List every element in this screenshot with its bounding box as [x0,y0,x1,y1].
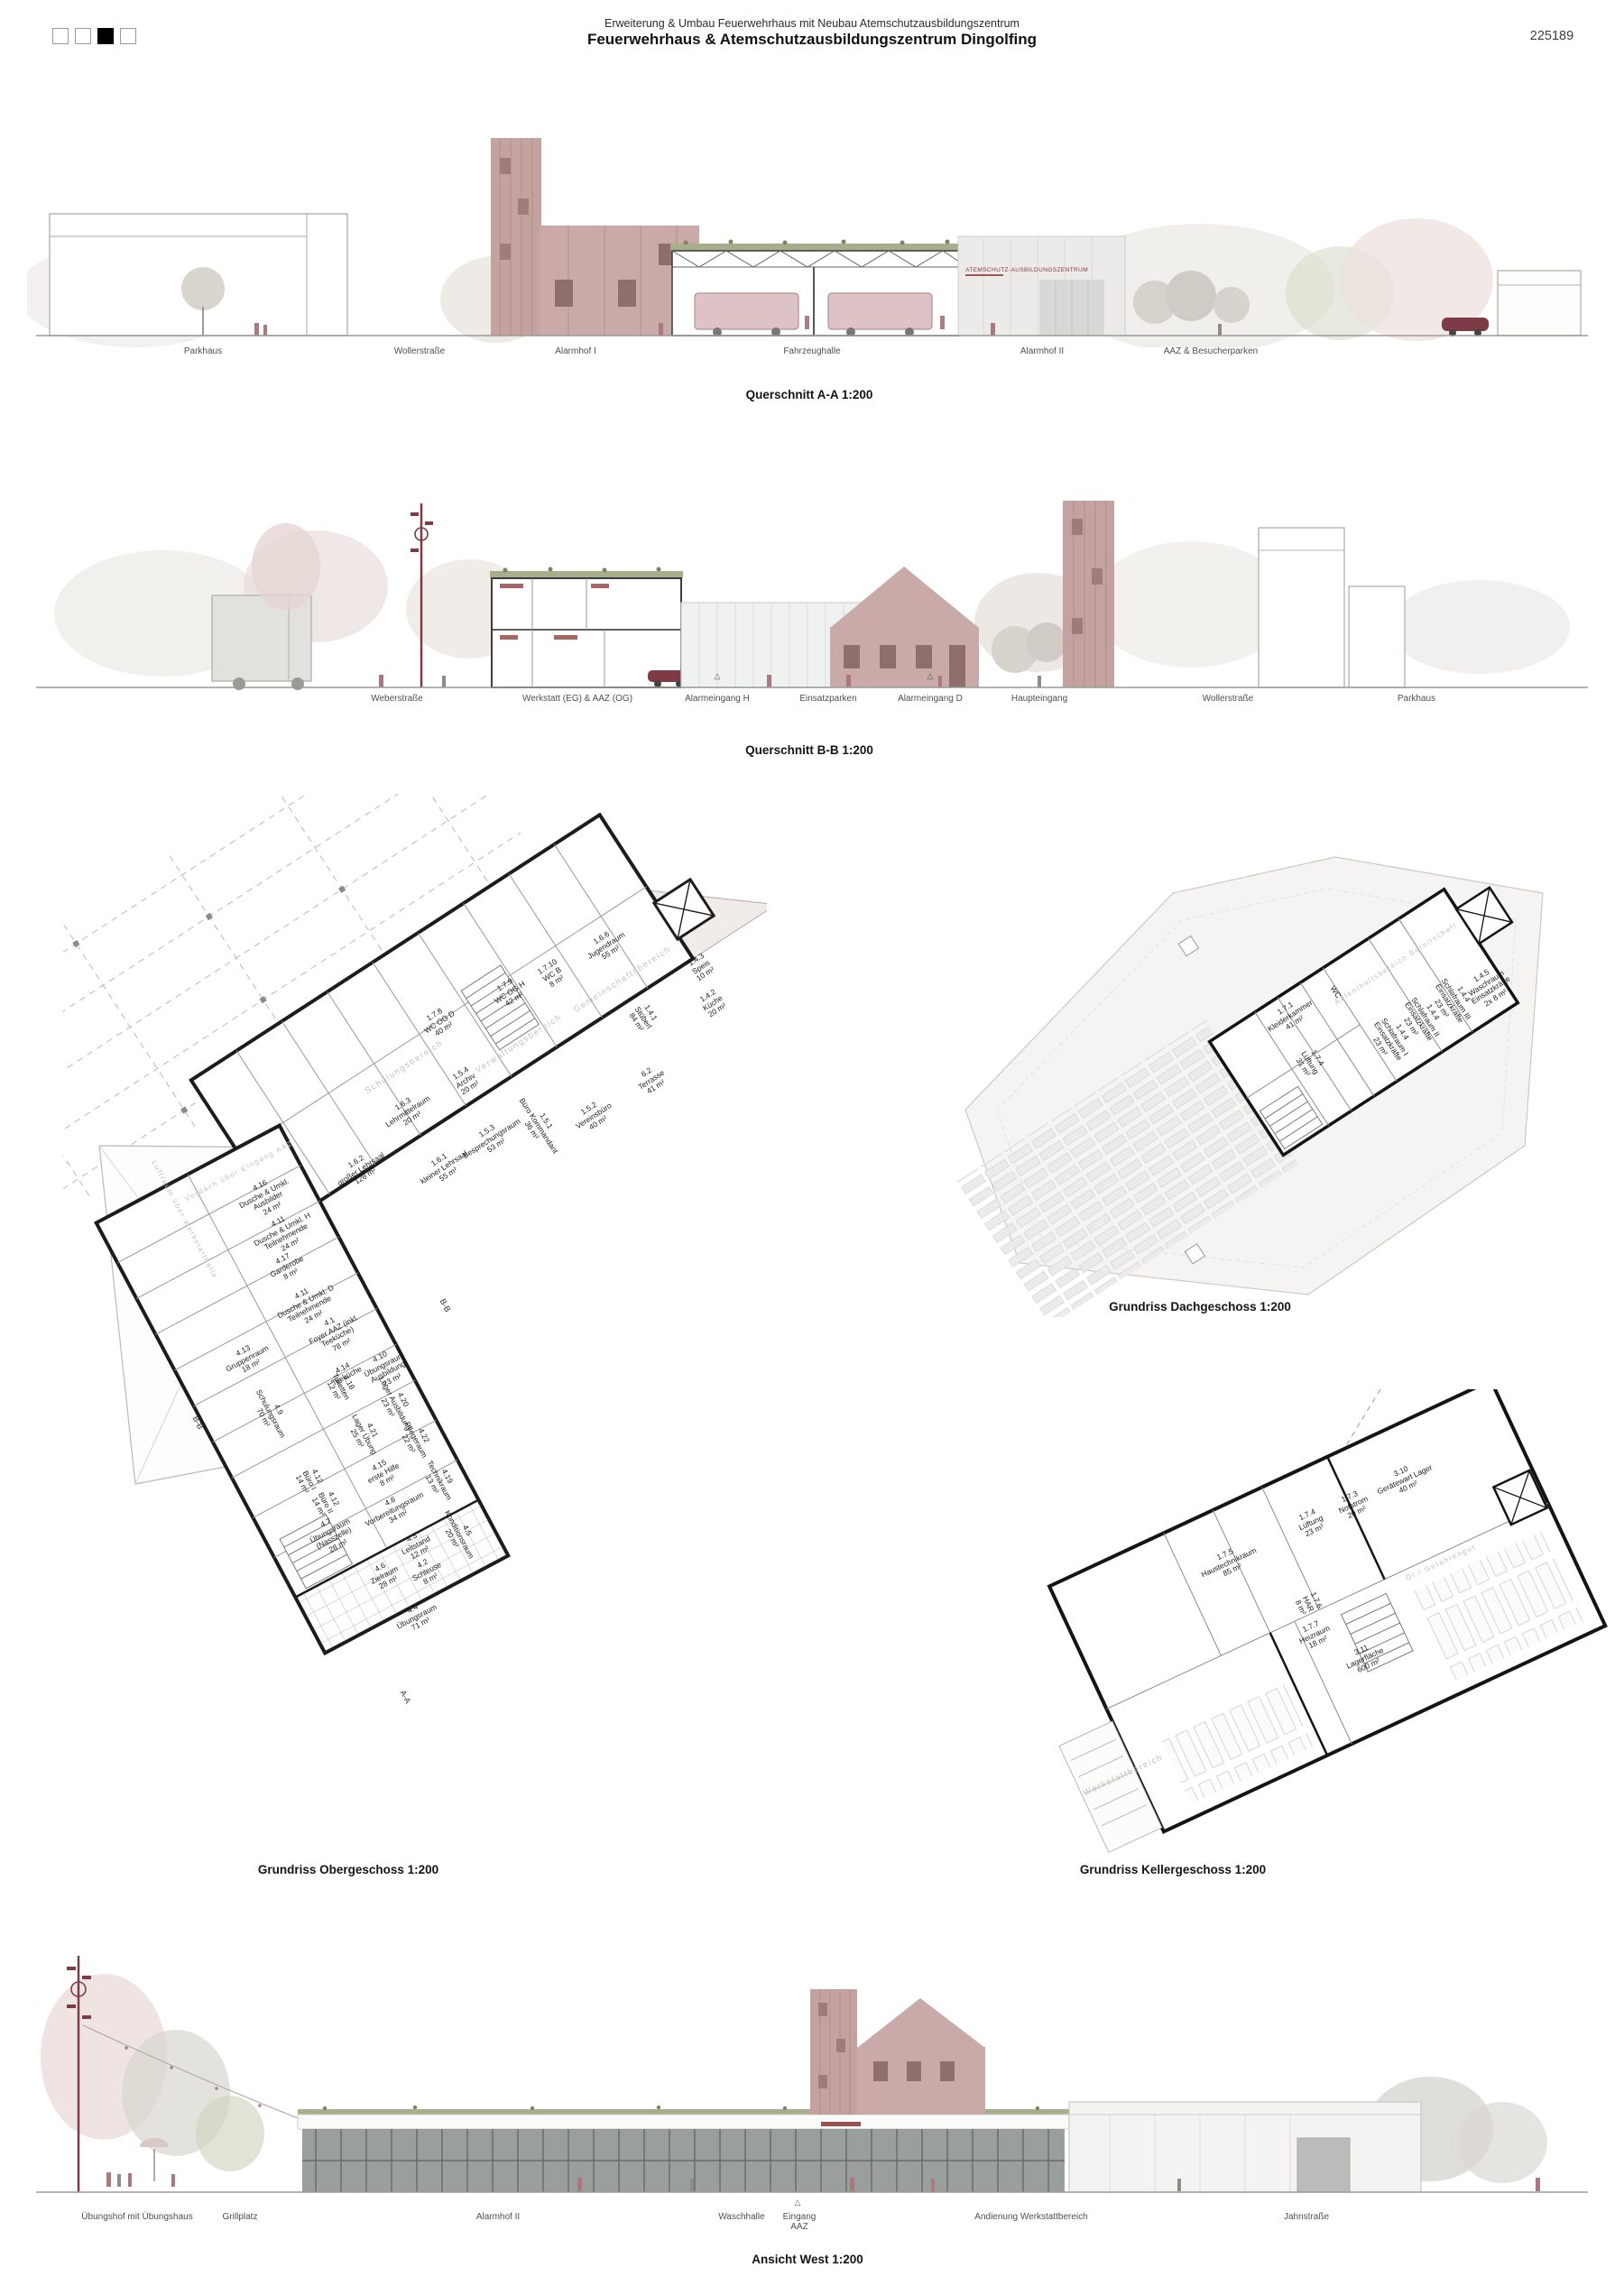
entrance-marker-triangle: △ [927,671,934,681]
ground-label: Wollerstraße [394,346,446,356]
caption-querschnitt-aa: Querschnitt A-A 1:200 [746,388,873,401]
page-indicator-square [120,28,136,44]
presentation-board: { "header": { "project_line": "Erweiteru… [0,0,1624,2295]
section-aa-drawing: ATEMSCHUTZ-AUSBILDUNGSZENTRUM [27,108,1597,347]
project-subtitle: Erweiterung & Umbau Feuerwehrhaus mit Ne… [604,17,1020,30]
caption-ansicht-west: Ansicht West 1:200 [752,2253,863,2266]
ground-label: Grillplatz [223,2212,258,2222]
ground-label: Alarmeingang H [685,694,750,704]
ground-label: Alarmhof I [555,346,596,356]
caption-grundriss-dachgeschoss: Grundriss Dachgeschoss 1:200 [1109,1300,1291,1313]
page-indicator-square-active [97,28,114,44]
dg-plan-drawing [947,839,1579,1317]
sheet-number: 225189 [1530,29,1573,43]
ground-label: Werkstatt (EG) & AAZ (OG) [522,694,632,704]
ground-label: Wollerstraße [1203,694,1254,704]
caption-grundriss-kellergeschoss: Grundriss Kellergeschoss 1:200 [1080,1863,1266,1876]
ground-label: Haupteingang [1011,694,1067,704]
page-indicator-square [75,28,91,44]
ground-label: Andienung Werkstattbereich [974,2212,1087,2222]
ground-label: Einsatzparken [799,694,856,704]
ground-label: Übungshof mit Übungshaus [81,2212,192,2222]
ground-label: Parkhaus [1398,694,1435,704]
ground-label: AAZ & Besucherparken [1164,346,1259,356]
page-indicator [52,28,136,44]
page-title: Feuerwehrhaus & Atemschutzausbildungszen… [587,31,1037,49]
ground-label: Waschhalle [718,2212,764,2222]
page-indicator-square [52,28,69,44]
section-bb-drawing [27,451,1597,699]
ground-label: Parkhaus [184,346,222,356]
ground-label: Alarmeingang D [898,694,963,704]
ground-label: Jahnstraße [1284,2212,1329,2222]
caption-querschnitt-bb: Querschnitt B-B 1:200 [745,743,873,757]
aaz-facade-sign: ATEMSCHUTZ-AUSBILDUNGSZENTRUM [965,267,1088,273]
ground-label: Eingang AAZ [778,2212,821,2232]
ground-label: Weberstraße [371,694,423,704]
ground-label: Alarmhof II [1020,346,1064,356]
ground-label: Alarmhof II [476,2212,520,2222]
ground-label: Fahrzeughalle [783,346,840,356]
elevation-west-drawing [27,1922,1597,2197]
caption-grundriss-obergeschoss: Grundriss Obergeschoss 1:200 [258,1863,438,1876]
entrance-marker-triangle: △ [715,671,721,681]
entrance-marker-triangle: △ [795,2198,801,2207]
